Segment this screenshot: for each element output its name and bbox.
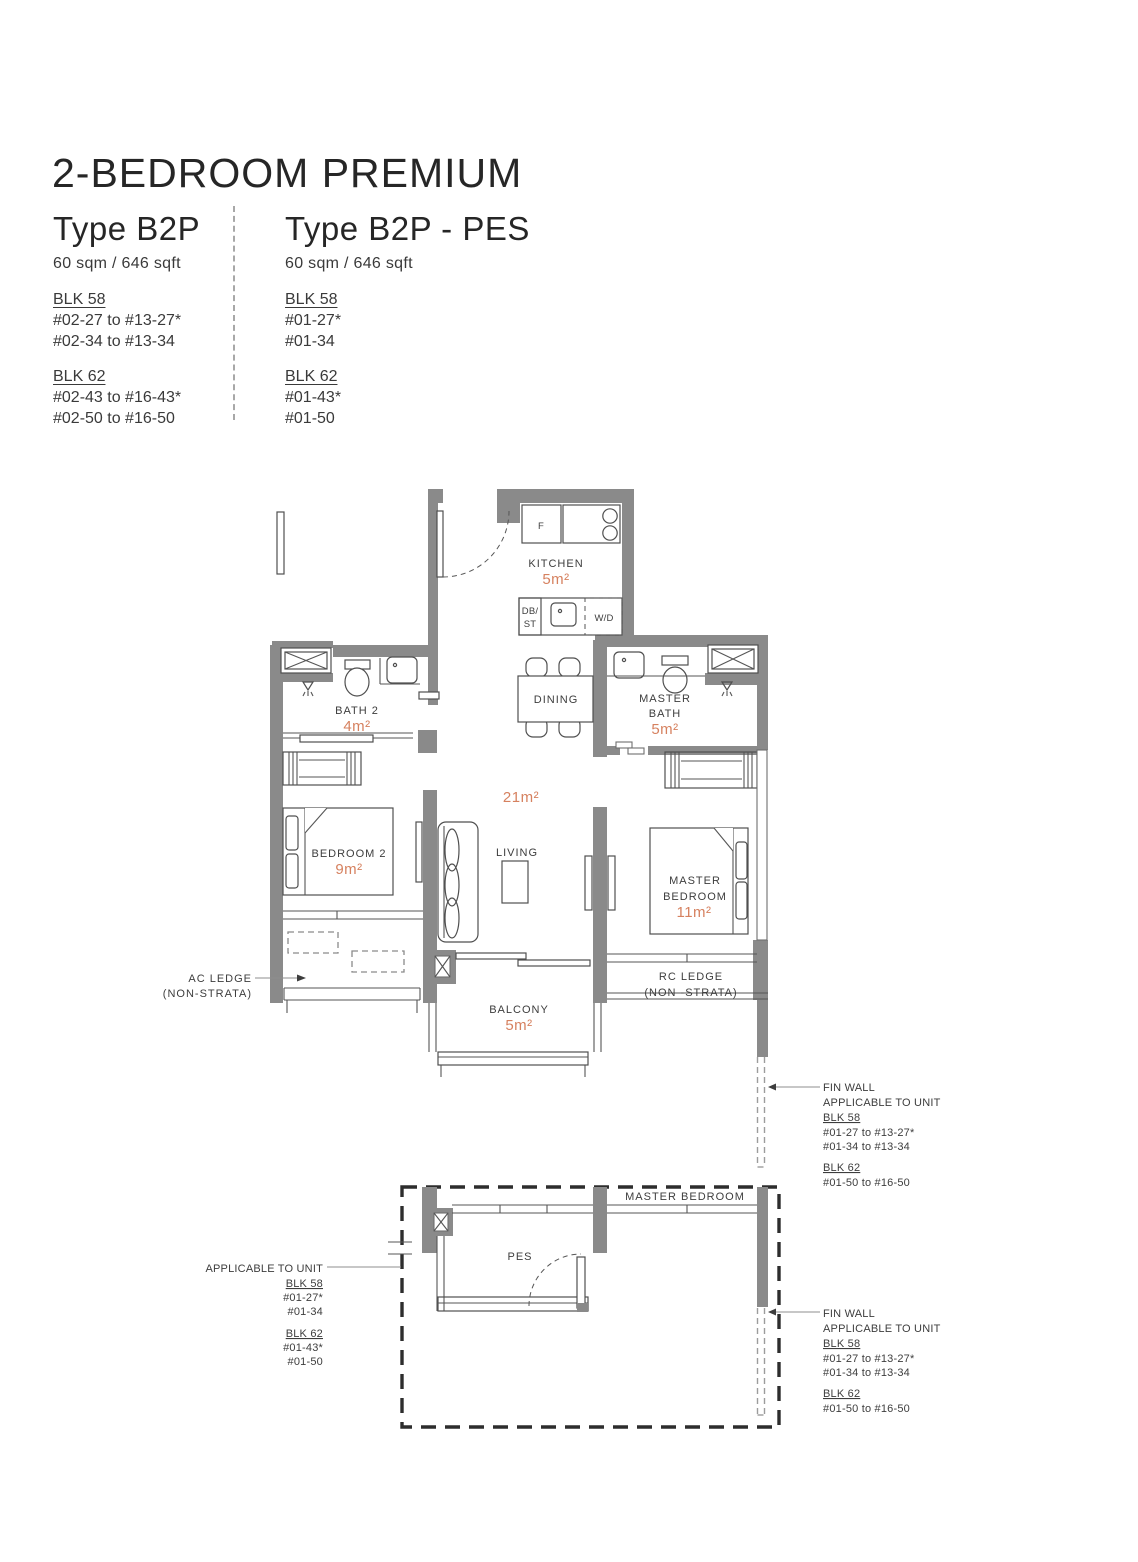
block-label: BLK 62	[823, 1162, 860, 1174]
fin-wall-title: FIN WALL	[823, 1082, 875, 1094]
fin-wall-title: FIN WALL	[823, 1308, 875, 1320]
unit-range: #01-34 to #13-34	[823, 1367, 910, 1379]
applicable-title: APPLICABLE TO UNIT	[205, 1263, 323, 1275]
pes-applicable-annotation: APPLICABLE TO UNIT BLK 58 #01-27* #01-34…	[205, 1263, 401, 1368]
pillow	[286, 816, 298, 850]
sliding-door-panel	[518, 960, 590, 966]
wardrobe-master	[665, 752, 757, 788]
st-label: ST	[524, 619, 537, 630]
unit-range: #01-50 to #16-50	[823, 1403, 910, 1415]
block-label: BLK 58	[286, 1278, 323, 1290]
pillow	[286, 854, 298, 888]
door-jamb	[419, 692, 439, 699]
tv-console	[608, 856, 615, 910]
floor-plan-drawing: F DB/ ST W/D KITCHEN 5m² BATH	[0, 0, 1138, 1562]
pes-boundary	[402, 1187, 779, 1427]
door-panel	[628, 748, 644, 754]
living-label: LIVING	[496, 847, 538, 859]
master-bath-label-1: MASTER	[639, 693, 691, 705]
arrow-icon	[768, 1309, 776, 1316]
fin-wall-upper: FIN WALL APPLICABLE TO UNIT BLK 58 #01-2…	[758, 1057, 941, 1189]
dining: DINING	[518, 658, 593, 737]
gate-leaf	[577, 1257, 585, 1308]
ac-unit	[288, 932, 338, 953]
wardrobe-bedroom2	[283, 752, 361, 785]
block-label: BLK 62	[286, 1328, 323, 1340]
kitchen-area-label: 5m²	[542, 571, 569, 588]
window-band	[757, 750, 767, 940]
kitchen-sink	[551, 603, 576, 626]
floorplan-page: 2-BEDROOM PREMIUM Type B2P 60 sqm / 646 …	[0, 0, 1138, 1562]
door-panel	[616, 742, 632, 748]
master-bedroom: MASTER BEDROOM 11m²	[607, 750, 767, 962]
stove	[563, 505, 620, 543]
bath2: BATH 2 4m²	[281, 648, 420, 742]
unit-range: #01-27*	[283, 1292, 323, 1304]
arrow-icon	[297, 975, 306, 982]
master-bedroom-area-label: 11m²	[676, 904, 711, 921]
chair	[526, 658, 547, 677]
balcony-area-label: 5m²	[505, 1017, 532, 1034]
unit-range: #01-27 to #13-27*	[823, 1127, 915, 1139]
pillow	[736, 882, 747, 919]
ac-ledge-label-2: (NON-STRATA)	[163, 988, 252, 1000]
coffee-table	[502, 861, 528, 903]
bedroom2-area-label: 9m²	[335, 861, 362, 878]
fridge-label: F	[538, 521, 544, 532]
wd-label: W/D	[594, 613, 613, 624]
ac-unit	[352, 951, 404, 972]
toilet-bowl	[663, 667, 687, 693]
sliding-door	[300, 735, 373, 742]
chair	[559, 658, 580, 677]
balcony: BALCONY 5m²	[429, 950, 601, 1077]
shower-head-icon	[303, 682, 313, 690]
unit-range: #01-43*	[283, 1342, 323, 1354]
dining-label: DINING	[534, 694, 579, 706]
pes-label: PES	[507, 1251, 532, 1263]
fin-wall-subtitle: APPLICABLE TO UNIT	[823, 1097, 941, 1109]
pes-plan: MASTER BEDROOM PES	[388, 1187, 779, 1427]
master-bath-area-label: 5m²	[651, 721, 678, 738]
bath2-label: BATH 2	[335, 705, 379, 717]
railing	[438, 1297, 588, 1311]
pes-master-bedroom-label: MASTER BEDROOM	[625, 1191, 745, 1203]
bedroom2-label: BEDROOM 2	[311, 848, 386, 860]
arrow-icon	[768, 1084, 776, 1091]
master-bath: MASTER BATH 5m²	[607, 645, 758, 754]
unit-range: #01-50	[288, 1356, 323, 1368]
toilet-tank	[662, 656, 688, 665]
rc-ledge: RC LEDGE (NON -STRATA)	[607, 971, 768, 999]
ac-ledge: AC LEDGE (NON-STRATA)	[163, 932, 420, 1013]
block-label: BLK 58	[823, 1112, 860, 1124]
basin	[387, 657, 417, 683]
living: 21m² LIVING	[438, 789, 615, 942]
sliding-door-panel	[456, 953, 526, 959]
living-area-label: 21m²	[503, 789, 539, 806]
tv-console	[416, 822, 422, 882]
fin-wall-lower: FIN WALL APPLICABLE TO UNIT BLK 58 #01-2…	[758, 1308, 941, 1415]
basin	[614, 652, 644, 678]
bedroom2: BEDROOM 2 9m²	[283, 808, 423, 919]
unit-range: #01-50 to #16-50	[823, 1177, 910, 1189]
db-label: DB/	[522, 606, 539, 617]
kitchen-label: KITCHEN	[528, 558, 583, 570]
block-label: BLK 58	[823, 1338, 860, 1350]
balcony-label: BALCONY	[489, 1004, 549, 1016]
toilet-bowl	[345, 668, 369, 696]
corridor-window	[277, 512, 284, 574]
master-bedroom-label-1: MASTER	[669, 875, 721, 887]
rc-ledge-label-2: (NON -STRATA)	[644, 987, 737, 999]
ac-ledge-label-1: AC LEDGE	[188, 973, 252, 985]
master-bedroom-label-2: BEDROOM	[663, 891, 727, 903]
pillow	[736, 842, 747, 879]
unit-range: #01-27 to #13-27*	[823, 1353, 915, 1365]
bath2-area-label: 4m²	[343, 718, 370, 735]
block-label: BLK 62	[823, 1388, 860, 1400]
railing	[438, 1052, 588, 1065]
master-bath-label-2: BATH	[649, 708, 682, 720]
fin-wall-subtitle: APPLICABLE TO UNIT	[823, 1323, 941, 1335]
kitchen: F DB/ ST W/D KITCHEN 5m²	[519, 505, 622, 635]
unit-range: #01-34 to #13-34	[823, 1141, 910, 1153]
tv-console	[585, 856, 592, 910]
rc-ledge-label-1: RC LEDGE	[659, 971, 723, 983]
unit-range: #01-34	[288, 1306, 323, 1318]
